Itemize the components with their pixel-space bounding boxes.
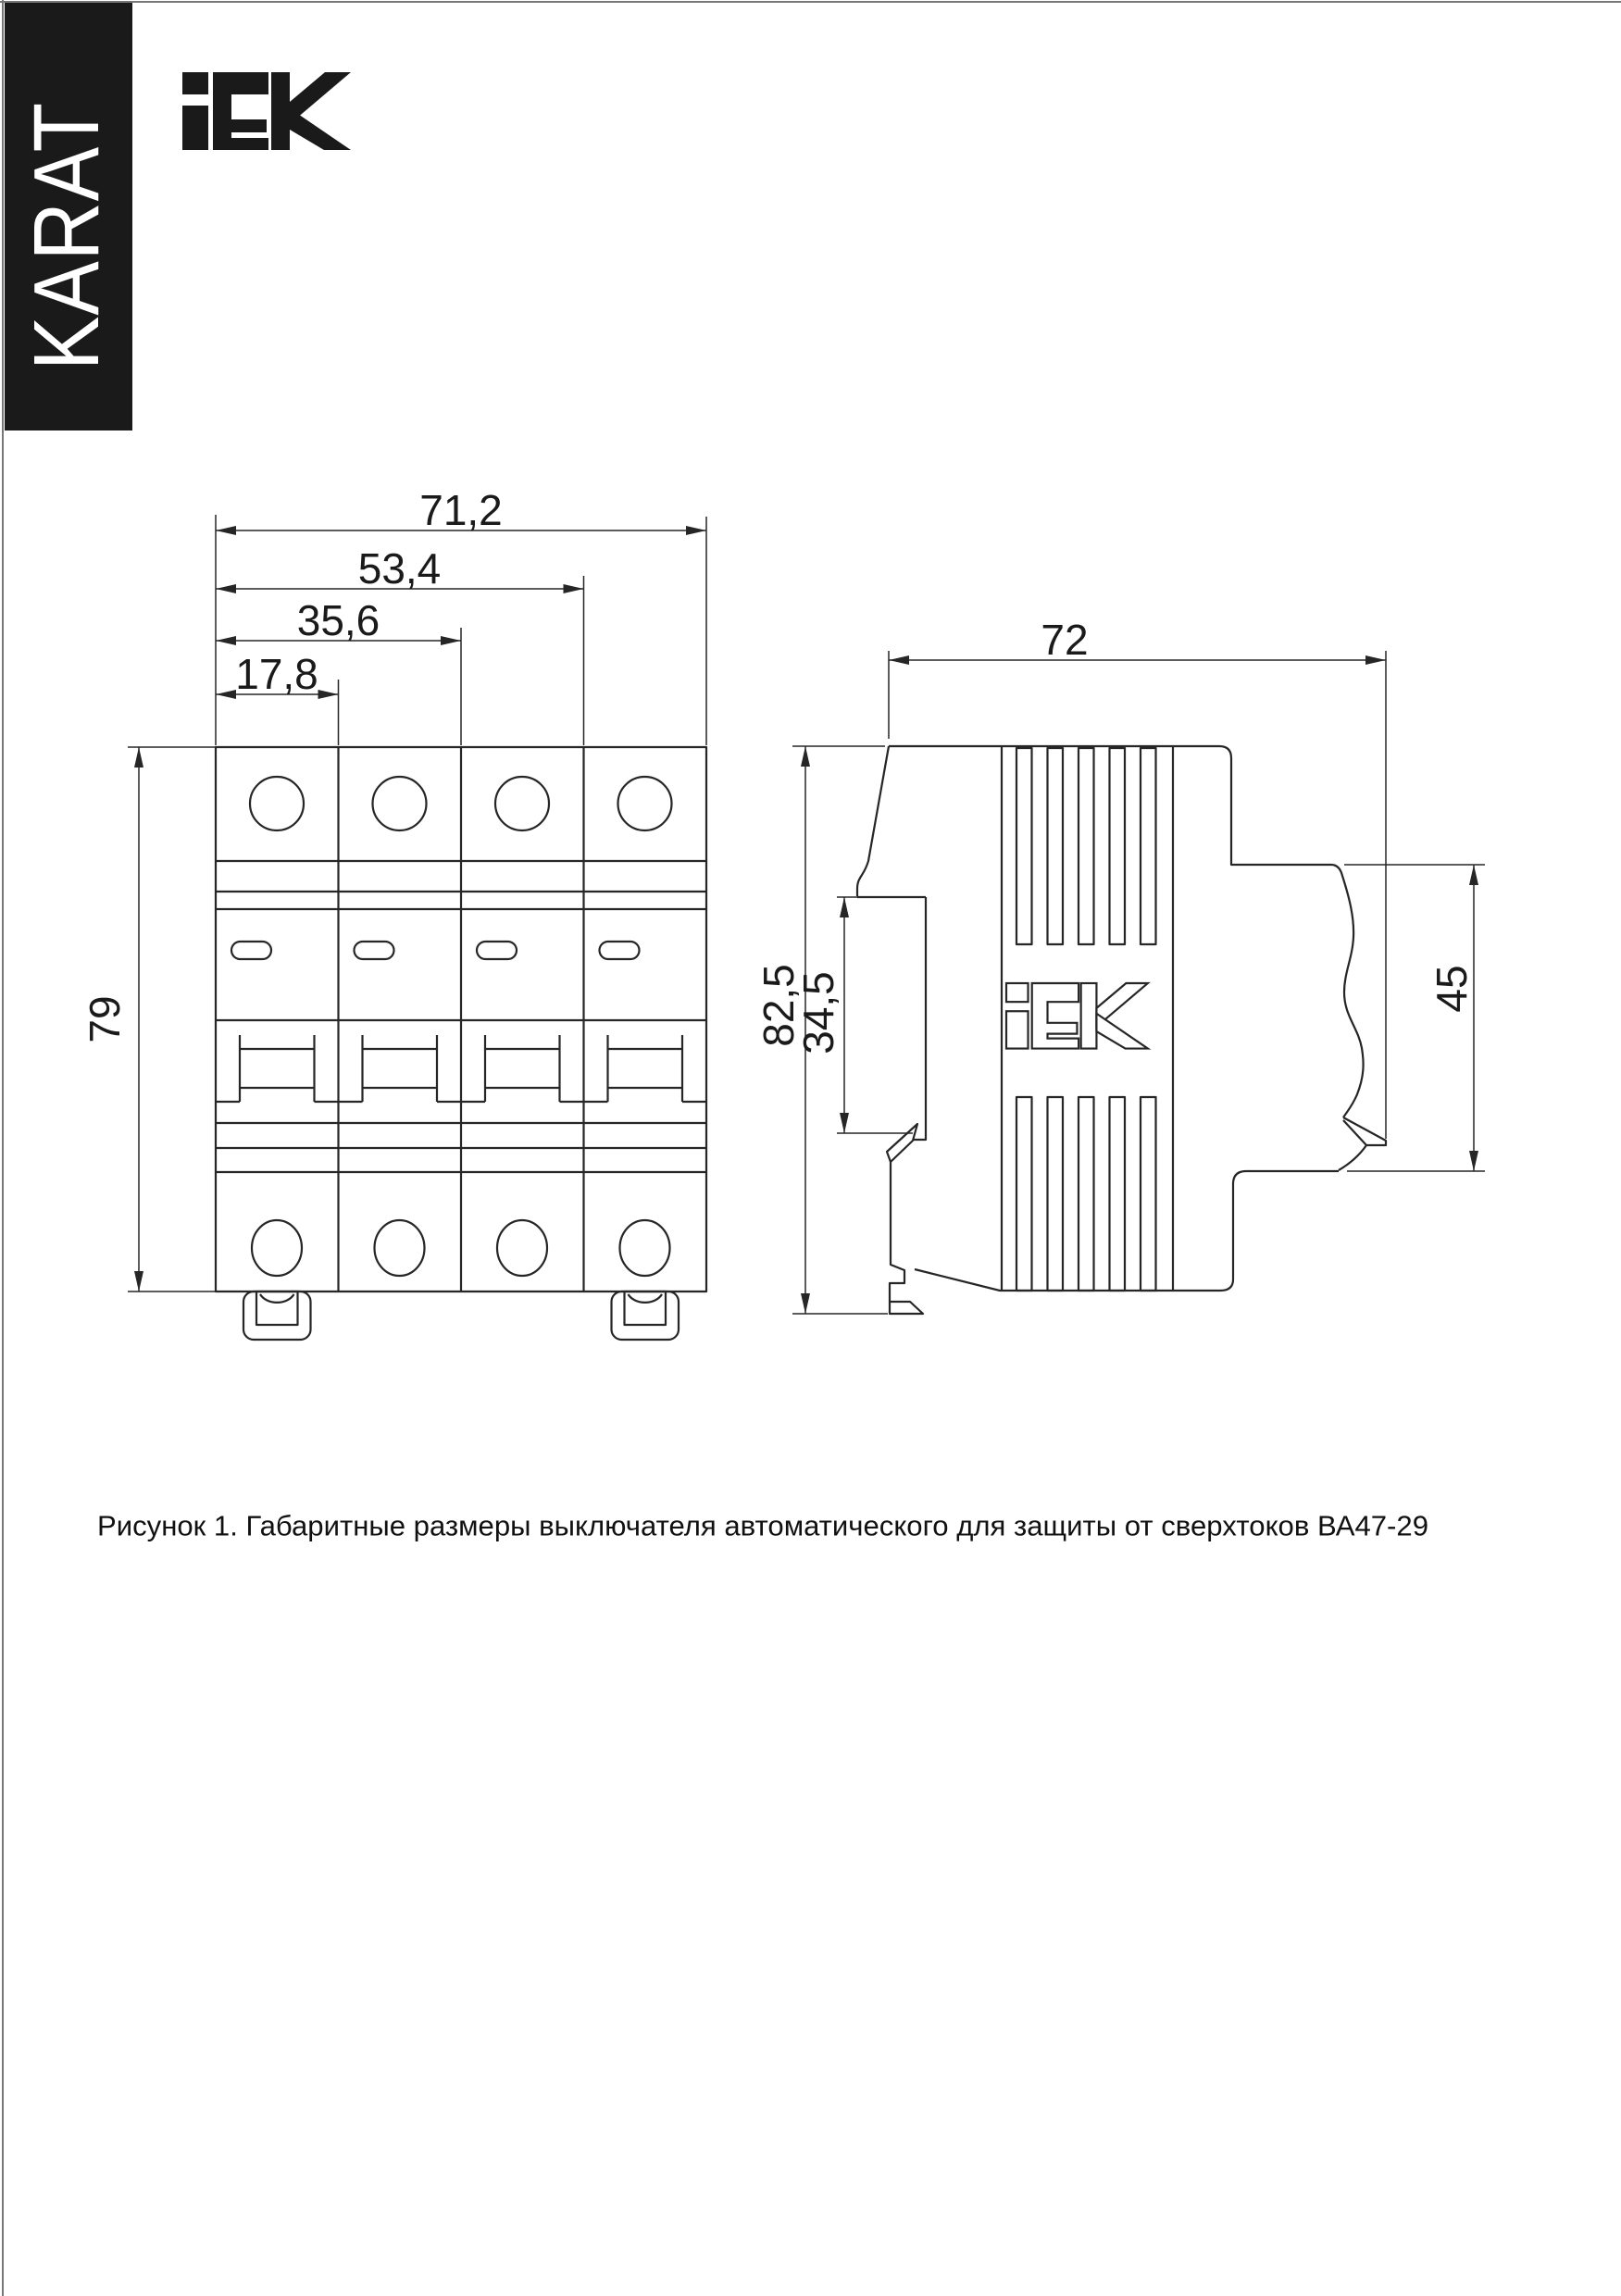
document-page: KARAT 71,2 5 [0,0,1621,2296]
dim-side-depth: 72 [1041,616,1088,664]
dim-side-front-height: 45 [1428,965,1476,1012]
front-width-dimensions: 71,2 53,4 35,6 17,8 [216,486,706,745]
side-view-drawing: 72 82,5 34,5 45 [754,616,1485,1314]
dim-front-height: 79 [81,995,129,1042]
side-recess-dimension: 34,5 [794,897,913,1133]
iek-logo [182,72,351,150]
dim-front-one-module: 17,8 [235,650,318,698]
karat-banner: KARAT [5,3,132,430]
dim-front-three-modules: 53,4 [358,544,442,593]
dim-front-total-width: 71,2 [419,486,503,534]
side-depth-dimension: 72 [889,616,1386,1139]
vent-slots-upper [1016,748,1156,944]
iek-logo-embossed [1006,983,1148,1049]
vent-slots-lower [1016,1097,1156,1291]
side-front-height-dimension: 45 [1344,865,1485,1171]
technical-drawing-canvas: KARAT 71,2 5 [0,0,1621,2296]
banner-brand-text: KARAT [15,102,118,370]
front-height-dimension: 79 [81,747,216,1291]
figure-caption: Рисунок 1. Габаритные размеры выключател… [97,1510,1428,1542]
front-view-drawing: 71,2 53,4 35,6 17,8 79 [81,486,706,1340]
dim-front-two-modules: 35,6 [297,596,380,644]
dim-side-rail-recess: 34,5 [794,971,842,1054]
